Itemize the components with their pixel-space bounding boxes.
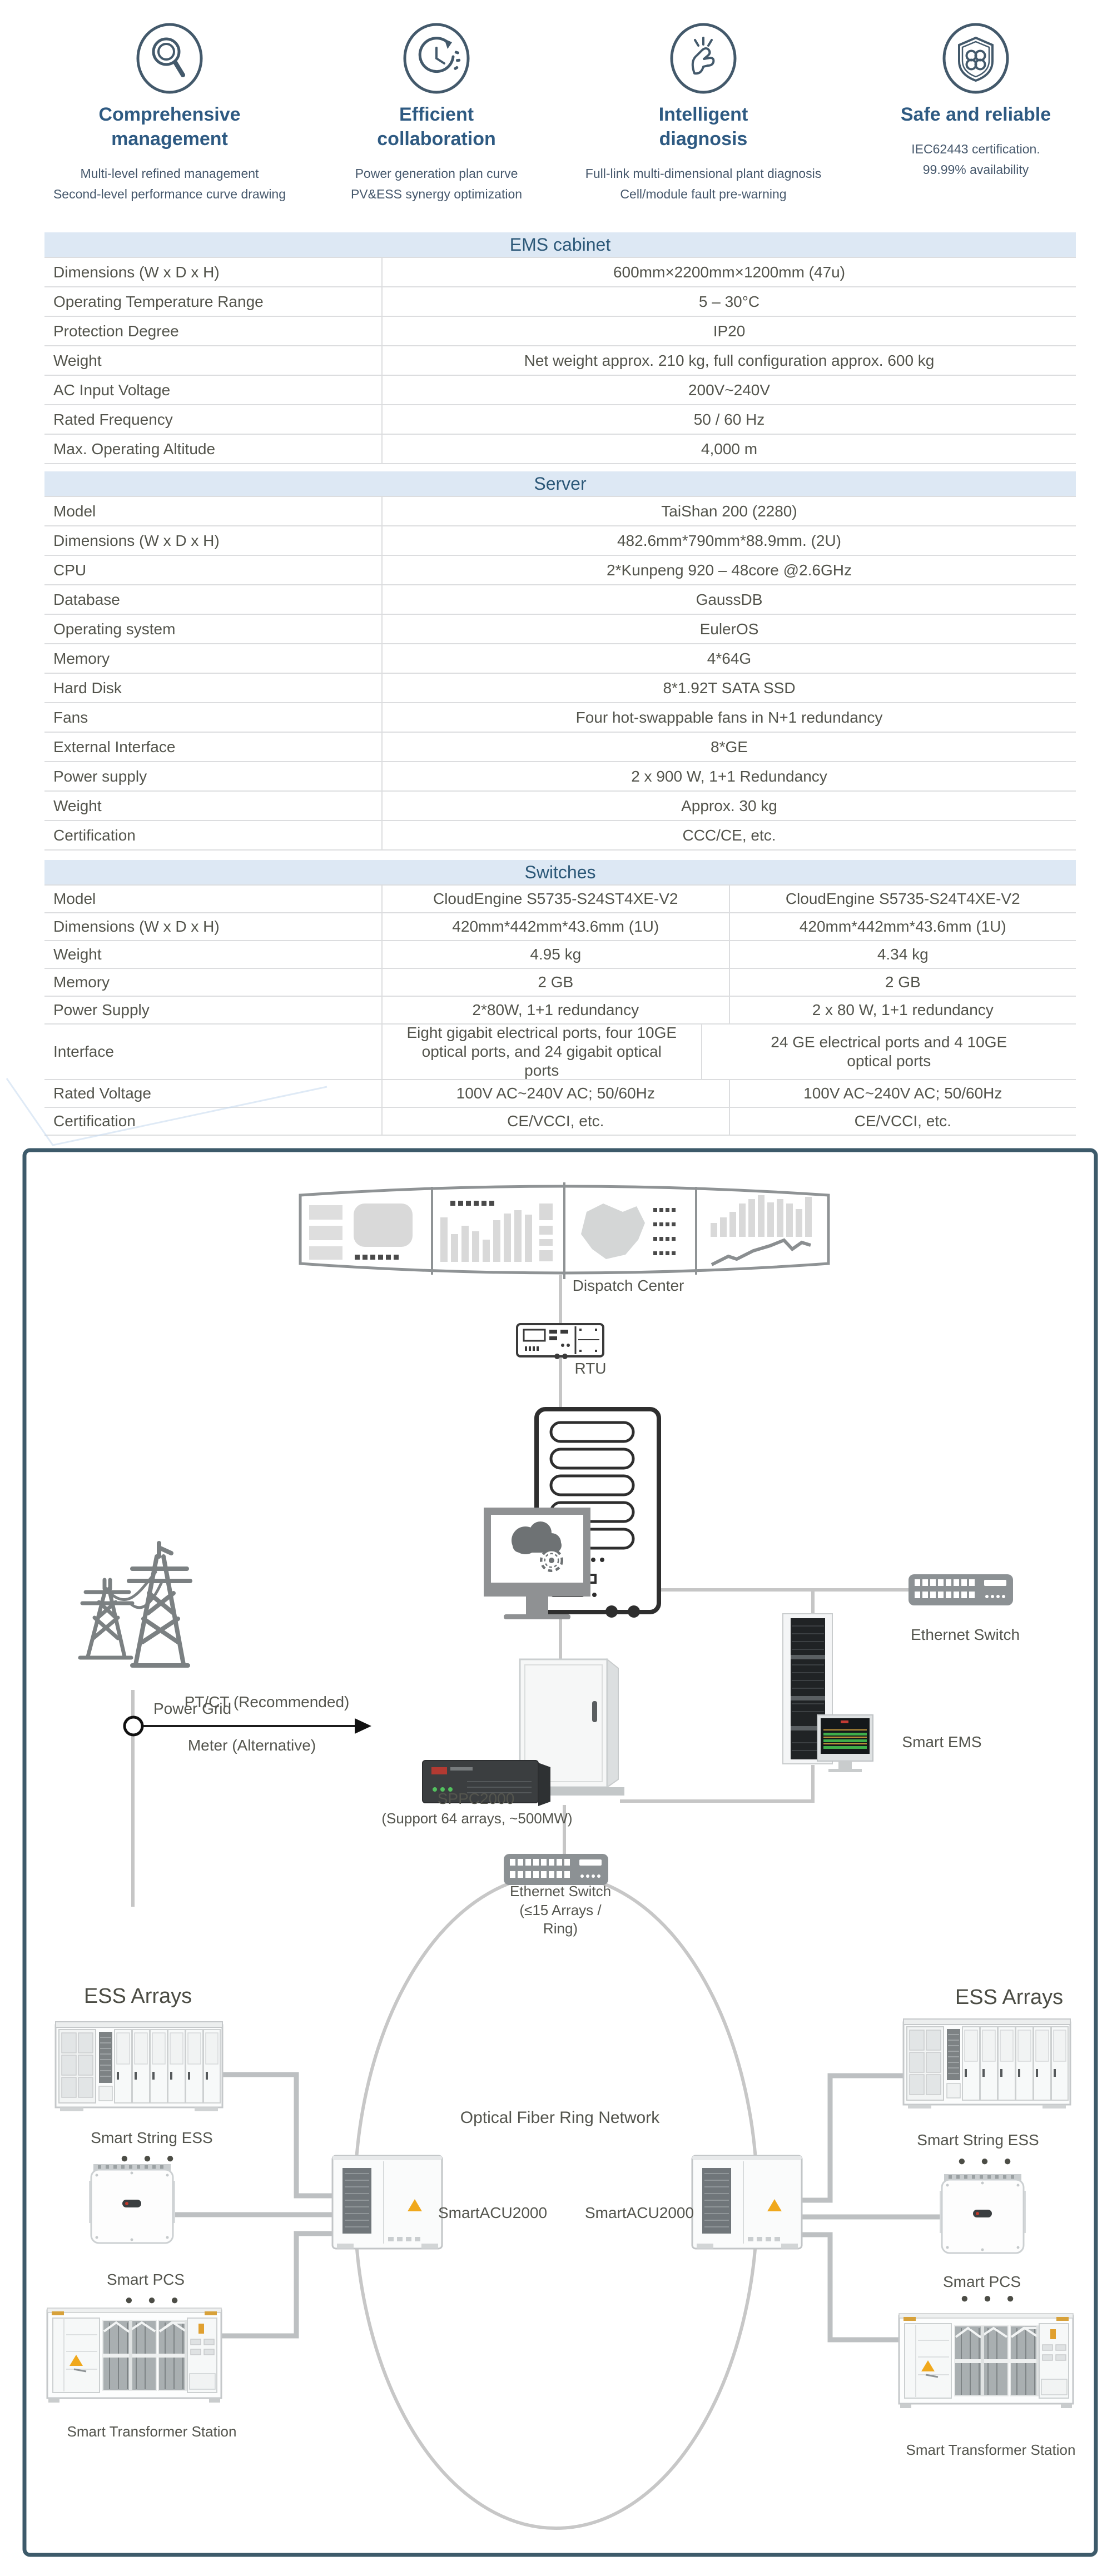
server-table-title: Server: [44, 471, 1076, 496]
table-row: Database GaussDB: [44, 585, 1076, 615]
table-row: Certification CCC/CE, etc.: [44, 821, 1076, 851]
smart-pcs-right-label: Smart PCS: [943, 2272, 1021, 2291]
feature-efficient-collaboration: Efficient collaboration Power generation…: [292, 22, 581, 205]
smart-ems-label: Smart EMS: [902, 1733, 981, 1752]
ptct-label: PT/CT (Recommended): [185, 1693, 350, 1712]
feature-safe-reliable: Safe and reliable IEC62443 certification…: [831, 22, 1112, 180]
feature-title: Intelligent diagnosis: [620, 102, 787, 151]
transformer-station-left-icon: [47, 2308, 221, 2403]
feature-title: Safe and reliable: [892, 102, 1059, 127]
table-row: Model CloudEngine S5735-S24ST4XE-V2 Clou…: [44, 884, 1076, 913]
ethernet-switch-label: Ethernet Switch: [911, 1625, 1020, 1644]
table-row: Weight 4.95 kg 4.34 kg: [44, 941, 1076, 969]
table-row: Rated Frequency 50 / 60 Hz: [44, 405, 1076, 435]
magnifier-icon: [135, 22, 204, 95]
table-row: Max. Operating Altitude 4,000 m: [44, 435, 1076, 464]
ethernet-switch-icon: [909, 1574, 1013, 1605]
feature-desc: Power generation plan curve PV&ESS syner…: [292, 163, 581, 205]
table-row: Power supply 2 x 900 W, 1+1 Redundancy: [44, 762, 1076, 792]
switches-table-title: Switches: [44, 860, 1076, 884]
table-row: Protection Degree IP20: [44, 317, 1076, 346]
ems-cabinet-table: EMS cabinet Dimensions (W x D x H) 600mm…: [44, 232, 1076, 464]
smart-string-ess-right-label: Smart String ESS: [917, 2131, 1039, 2150]
smart-pcs-right-icon: [940, 2174, 1026, 2253]
table-row: Memory 2 GB 2 GB: [44, 969, 1076, 997]
cycle-clock-icon: [402, 22, 471, 95]
smartacu2000-right-icon: [692, 2156, 802, 2249]
smartacu-right-label: SmartACU2000: [585, 2204, 694, 2222]
ess-arrays-right-title: ESS Arrays: [955, 1985, 1063, 2010]
rtu-label: RTU: [574, 1359, 606, 1378]
table-row: External Interface 8*GE: [44, 733, 1076, 762]
transformer-station-right-icon: [899, 2314, 1073, 2408]
meter-label: Meter (Alternative): [188, 1736, 316, 1755]
server-table: Server Model TaiShan 200 (2280) Dimensio…: [44, 471, 1076, 851]
smart-transformer-left-label: Smart Transformer Station: [67, 2423, 237, 2440]
snap-finger-icon: [669, 22, 738, 95]
table-row: AC Input Voltage 200V~240V: [44, 376, 1076, 405]
table-row: CPU 2*Kunpeng 920 – 48core @2.6GHz: [44, 556, 1076, 585]
table-row: Operating Temperature Range 5 – 30°C: [44, 287, 1076, 317]
ring-switch-label-2: (≤15 Arrays /: [519, 1901, 601, 1919]
smart-pcs-left-label: Smart PCS: [107, 2270, 185, 2289]
watermark-swoosh: [0, 1065, 345, 1159]
feature-title: Efficient collaboration: [353, 102, 520, 151]
optical-ring-label: Optical Fiber Ring Network: [460, 2108, 659, 2128]
product-spec-page: { "colors": { "accent_blue": "#2e5a82", …: [0, 0, 1112, 2576]
ellipsis-pcs-left: ● ● ●: [125, 2291, 185, 2310]
smart-string-ess-left-label: Smart String ESS: [91, 2129, 212, 2147]
ring-switch-label-1: Ethernet Switch: [510, 1882, 611, 1900]
table-row: Weight Approx. 30 kg: [44, 792, 1076, 821]
feature-desc: Full-link multi-dimensional plant diagno…: [559, 163, 848, 205]
table-row: Hard Disk 8*1.92T SATA SSD: [44, 674, 1076, 703]
feature-comprehensive-management: Comprehensive management Multi-level ref…: [25, 22, 314, 205]
dispatch-center-label: Dispatch Center: [573, 1276, 684, 1295]
table-row: Memory 4*64G: [44, 644, 1076, 674]
shield-clover-icon: [941, 22, 1010, 95]
table-row: Dimensions (W x D x H) 482.6mm*790mm*88.…: [44, 526, 1076, 556]
ess-container-left-icon: [56, 2022, 222, 2111]
ring-ethernet-switch-icon: [504, 1854, 608, 1885]
sppc2000-sub-label: (Support 64 arrays, ~500MW): [381, 1809, 572, 1827]
table-row: Dimensions (W x D x H) 420mm*442mm*43.6m…: [44, 913, 1076, 941]
table-row: Weight Net weight approx. 210 kg, full c…: [44, 346, 1076, 376]
table-row: Fans Four hot-swappable fans in N+1 redu…: [44, 703, 1076, 733]
smartacu2000-left-icon: [332, 2156, 442, 2249]
table-row: Operating system EulerOS: [44, 615, 1076, 644]
ess-container-right-icon: [904, 2019, 1070, 2108]
ellipsis-pcs-right: ● ● ●: [961, 2289, 1020, 2308]
rtu-icon: [517, 1324, 603, 1359]
sppc2000-label: SPPC2000: [438, 1789, 515, 1808]
ring-switch-label-3: Ring): [543, 1919, 578, 1937]
ellipsis-string-left: ● ● ●: [121, 2149, 180, 2168]
table-row: Dimensions (W x D x H) 600mm×2200mm×1200…: [44, 257, 1076, 287]
feature-desc: Multi-level refined management Second-le…: [25, 163, 314, 205]
ems-table-title: EMS cabinet: [44, 232, 1076, 257]
smart-pcs-left-icon: [89, 2164, 175, 2243]
feature-desc: IEC62443 certification. 99.99% availabil…: [831, 139, 1112, 180]
smart-transformer-right-label: Smart Transformer Station: [906, 2441, 1076, 2459]
feature-title: Comprehensive management: [86, 102, 253, 151]
table-row: Power Supply 2*80W, 1+1 redundancy 2 x 8…: [44, 997, 1076, 1025]
feature-intelligent-diagnosis: Intelligent diagnosis Full-link multi-di…: [559, 22, 848, 205]
smartacu-left-label: SmartACU2000: [438, 2204, 547, 2222]
ess-arrays-left-title: ESS Arrays: [84, 1983, 192, 2009]
dispatch-video-wall: [300, 1182, 828, 1279]
architecture-diagram: [22, 1148, 1098, 2557]
ellipsis-string-right: ● ● ●: [958, 2152, 1017, 2171]
table-row: Model TaiShan 200 (2280): [44, 496, 1076, 526]
